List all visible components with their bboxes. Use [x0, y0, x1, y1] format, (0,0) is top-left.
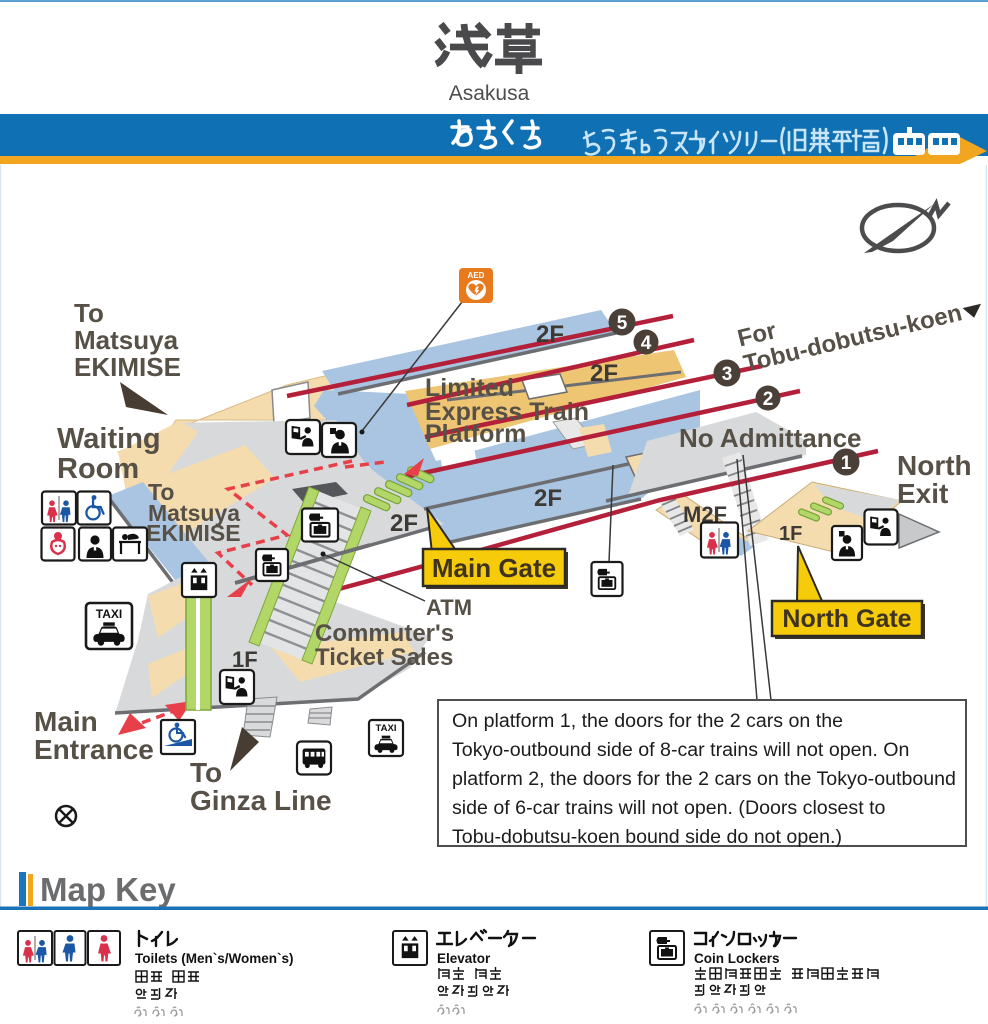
svg-text:On platform 1, the doors for t: On platform 1, the doors for the 2 cars … [452, 710, 843, 732]
svg-text:5: 5 [617, 313, 628, 334]
svg-text:2F: 2F [390, 510, 418, 537]
svg-text:To: To [74, 298, 104, 328]
svg-text:Waiting: Waiting [57, 423, 161, 455]
svg-text:Elevator: Elevator [437, 951, 491, 966]
svg-text:Matsuya: Matsuya [74, 325, 179, 355]
svg-text:Tokyo-outbound side of 8-car t: Tokyo-outbound side of 8-car trains will… [452, 739, 909, 761]
svg-text:EKIMISE: EKIMISE [74, 352, 181, 382]
svg-text:AED: AED [468, 271, 485, 280]
svg-text:2F: 2F [534, 485, 562, 512]
svg-text:side of 6-car trains will not: side of 6-car trains will not open. (Doo… [452, 797, 886, 819]
svg-text:2F: 2F [536, 321, 564, 348]
svg-text:Platform: Platform [425, 420, 526, 448]
svg-text:Main: Main [34, 706, 98, 737]
svg-text:1F: 1F [779, 523, 802, 545]
svg-text:1F: 1F [232, 647, 258, 672]
svg-text:ATM: ATM [426, 595, 472, 620]
svg-text:TAXI: TAXI [376, 723, 397, 734]
svg-text:EKIMISE: EKIMISE [146, 520, 241, 546]
svg-text:platform 2, the doors for the: platform 2, the doors for the 2 cars on … [452, 768, 956, 790]
svg-text:2: 2 [763, 389, 774, 410]
svg-text:2F: 2F [590, 360, 618, 387]
svg-text:TAXI: TAXI [96, 607, 122, 621]
svg-text:Asakusa: Asakusa [449, 82, 530, 105]
svg-text:Toilets (Men`s/Women`s): Toilets (Men`s/Women`s) [135, 951, 294, 966]
svg-text:No Admittance: No Admittance [679, 423, 862, 453]
svg-text:Coin Lockers: Coin Lockers [694, 951, 780, 966]
svg-text:Tobu-dobutsu-koen bound side d: Tobu-dobutsu-koen bound side do not open… [452, 826, 842, 848]
svg-text:3: 3 [722, 364, 733, 385]
svg-text:Map Key: Map Key [40, 871, 176, 908]
svg-text:Ticket Sales: Ticket Sales [315, 644, 453, 671]
svg-text:Main Gate: Main Gate [432, 553, 556, 583]
svg-text:To: To [190, 757, 222, 788]
svg-text:Ginza Line: Ginza Line [190, 785, 332, 816]
svg-text:North: North [897, 450, 972, 481]
svg-text:4: 4 [641, 333, 652, 354]
svg-text:1: 1 [841, 453, 852, 474]
svg-text:North Gate: North Gate [782, 605, 911, 633]
svg-text:Exit: Exit [897, 478, 948, 509]
svg-text:Commuter's: Commuter's [315, 620, 454, 647]
svg-text:Entrance: Entrance [34, 734, 154, 765]
svg-text:Room: Room [57, 453, 139, 485]
